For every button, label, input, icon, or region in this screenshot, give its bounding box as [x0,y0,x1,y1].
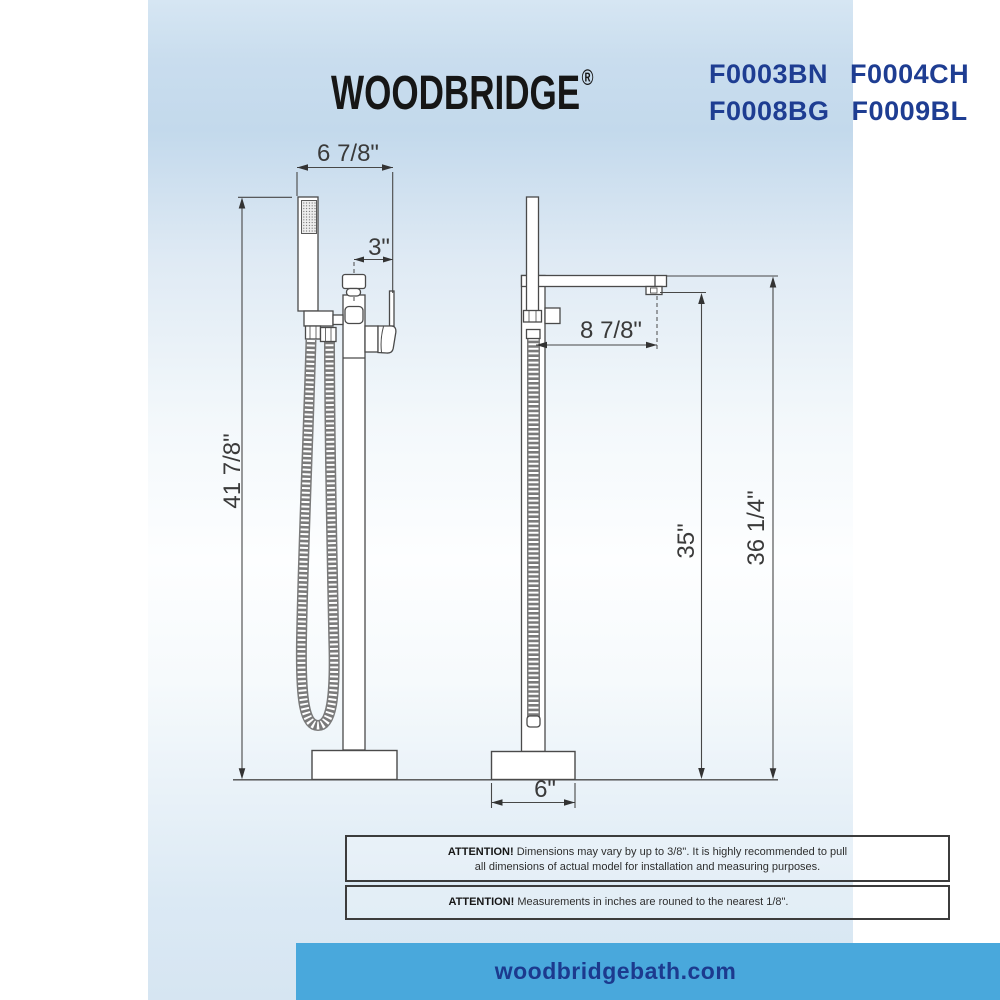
handle-grip [378,326,396,353]
lever-handle [365,291,396,353]
shower-holder-bracket [304,311,333,326]
hose-nuts-front [306,326,337,342]
faucet-side-view [492,197,667,780]
valve-collar [347,289,361,297]
handle-rod [390,291,395,326]
dim-label-spout-top-height: 36 1/4" [743,490,770,565]
dim-label-front-height: 41 7/8" [219,433,246,508]
hand-shower-hose-front [301,340,334,726]
page-background: WOODBRIDGE® F0003BN F0004CH F0008BG F000… [0,0,1000,1000]
dim-label-spout-reach: 8 7/8" [580,317,642,344]
dim-label-spout-height: 35" [673,523,700,558]
dim-label-base-width: 6" [534,776,556,803]
faucet-front-view [298,197,397,780]
hand-shower-hose-side [527,334,540,727]
dim-label-front-width: 6 7/8" [317,140,379,167]
hand-shower-side [527,197,539,311]
valve-top-cap [343,275,366,289]
spout-arm-body [522,276,667,287]
dim-front-height [238,197,292,779]
spray-face [302,201,317,234]
dim-label-handle-offset: 3" [368,234,390,261]
riser-column-front [343,295,365,750]
handle-mount [365,326,378,352]
hose-end-fitting [527,716,540,727]
dimension-lines [238,164,778,808]
hand-shower-front [298,197,318,311]
base-front [312,751,397,780]
dimension-drawing: 6 7/8" 3" 41 7/8" 8 7/8" 35" 36 1/4" 6" [0,0,1000,1000]
diverter-button [345,307,363,324]
holder-connector [333,315,343,325]
